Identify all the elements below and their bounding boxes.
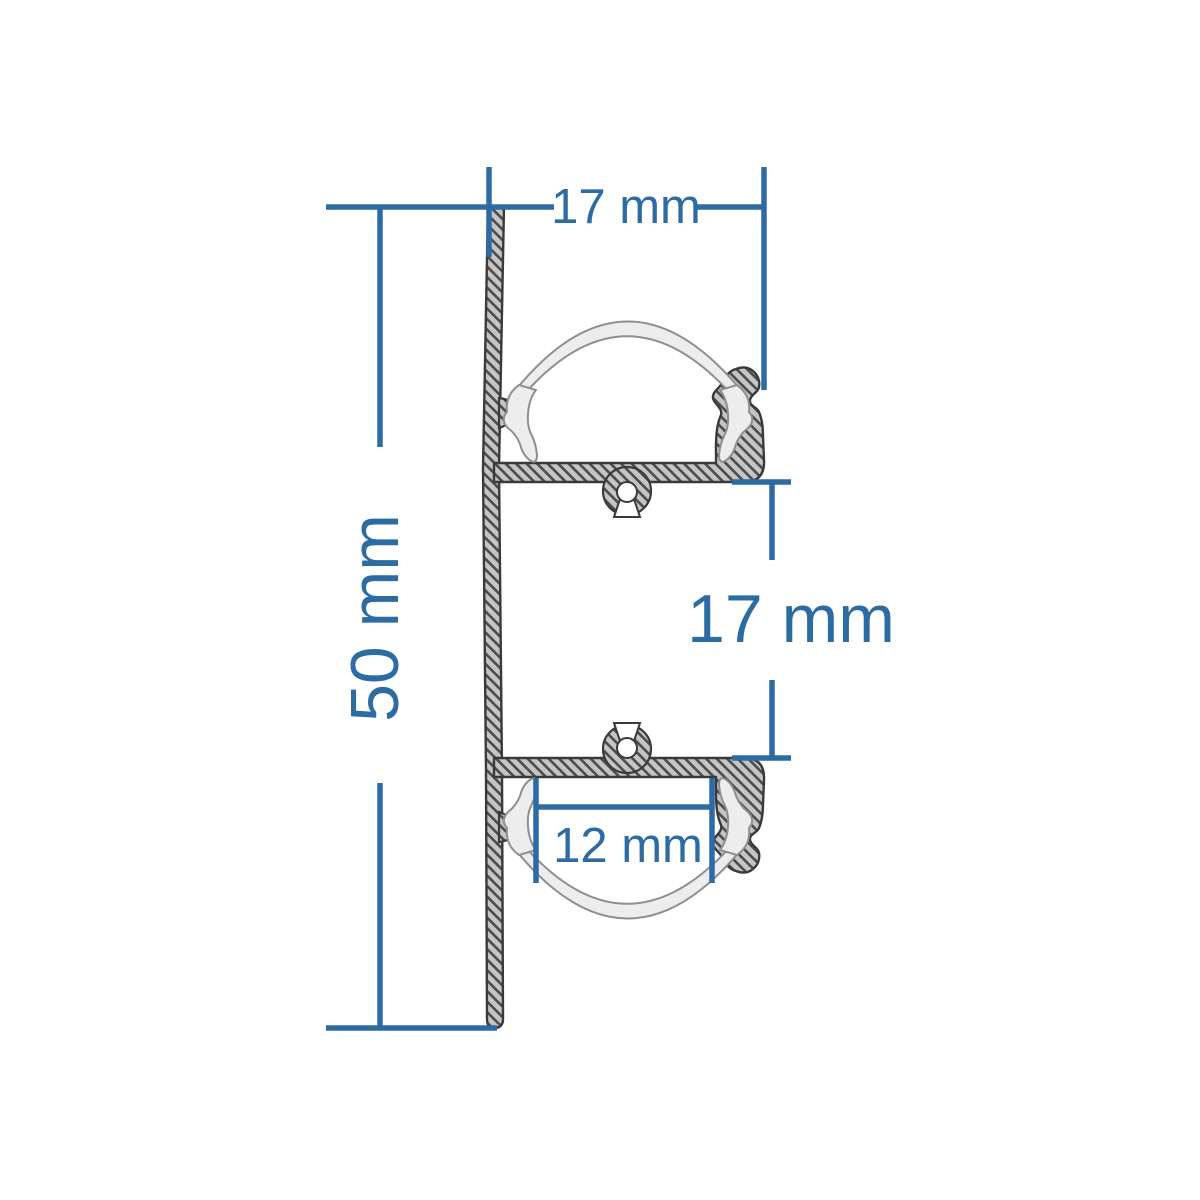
dimension-label-overall-height: 50 mm bbox=[337, 514, 413, 722]
dimension-middle-gap: 17 mm bbox=[687, 482, 895, 758]
profile-drawing: 17 mm 50 mm 17 mm 12 mm bbox=[0, 0, 1200, 1200]
upper-diffuser-left-foot bbox=[504, 385, 537, 462]
dimension-overall-height: 50 mm bbox=[326, 207, 497, 1028]
screw-boss-lower-hole bbox=[617, 738, 637, 758]
technical-drawing-canvas: 17 mm 50 mm 17 mm 12 mm bbox=[0, 0, 1200, 1200]
screw-boss-upper bbox=[603, 467, 651, 517]
dimension-label-middle-gap: 17 mm bbox=[687, 581, 895, 657]
lower-diffuser-left-foot bbox=[504, 778, 537, 855]
upper-diffuser-dome bbox=[514, 321, 744, 402]
back-wall bbox=[483, 206, 504, 1028]
dimension-label-top-width: 17 mm bbox=[551, 180, 701, 234]
dimension-label-inner-width: 12 mm bbox=[553, 819, 703, 873]
dimension-inner-width: 12 mm bbox=[536, 778, 712, 883]
screw-boss-lower bbox=[603, 723, 651, 773]
screw-boss-upper-hole bbox=[617, 482, 637, 502]
